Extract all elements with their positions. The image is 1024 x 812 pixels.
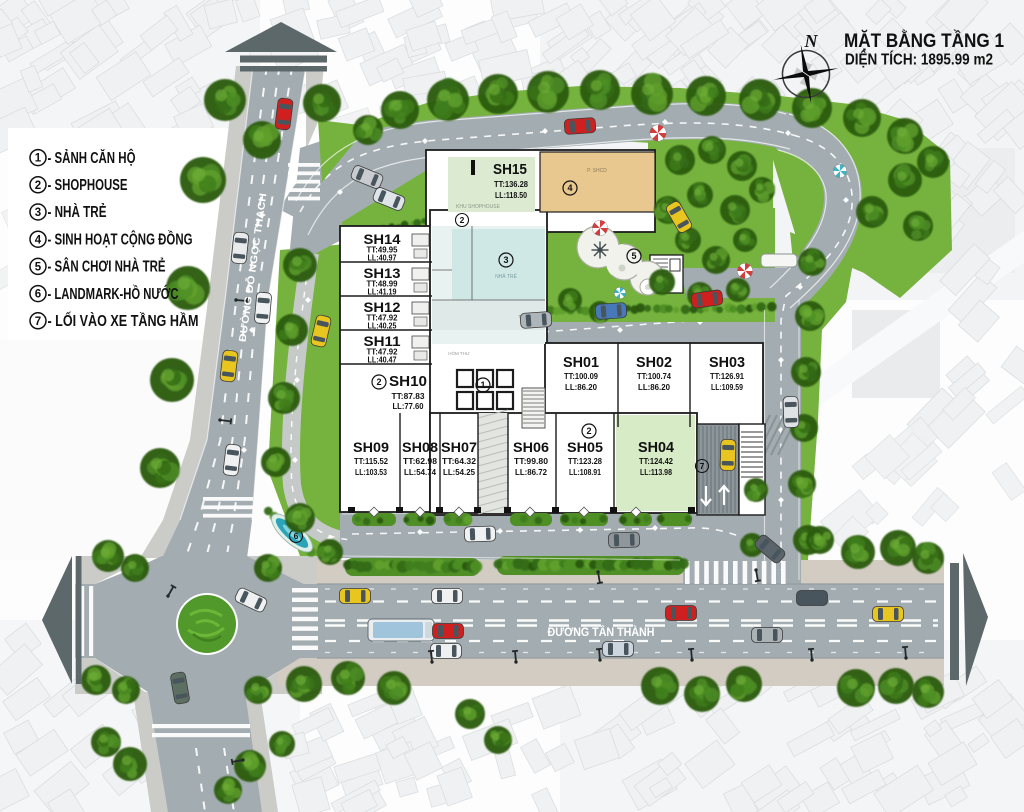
svg-text:SH09: SH09	[353, 439, 389, 455]
svg-text:DIỆN TÍCH: 1895.99 m2: DIỆN TÍCH: 1895.99 m2	[845, 50, 993, 69]
svg-text:- SÂN CHƠI NHÀ TRẺ: - SÂN CHƠI NHÀ TRẺ	[48, 258, 166, 276]
svg-text:LL:109.59: LL:109.59	[711, 382, 743, 392]
svg-text:2: 2	[376, 377, 381, 387]
svg-text:LL:40.97: LL:40.97	[368, 254, 397, 263]
svg-text:SH05: SH05	[567, 439, 603, 455]
svg-text:TT:62.98: TT:62.98	[403, 457, 438, 466]
svg-text:1: 1	[35, 153, 42, 165]
svg-text:LL:118.50: LL:118.50	[495, 190, 527, 200]
svg-text:TT:136.28: TT:136.28	[494, 179, 528, 189]
svg-text:- NHÀ TRẺ: - NHÀ TRẺ	[48, 204, 107, 221]
svg-text:LL:108.91: LL:108.91	[569, 468, 601, 477]
svg-text:LL:54.74: LL:54.74	[404, 468, 437, 477]
svg-text:LL:40.47: LL:40.47	[368, 356, 397, 365]
svg-text:5: 5	[35, 262, 42, 274]
svg-text:TT:123.28: TT:123.28	[568, 457, 602, 466]
svg-text:2: 2	[460, 215, 465, 225]
svg-text:LL:86.72: LL:86.72	[515, 468, 547, 477]
svg-text:- SINH HOẠT CỘNG ĐỒNG: - SINH HOẠT CỘNG ĐỒNG	[48, 230, 193, 248]
svg-text:TT:87.83: TT:87.83	[392, 391, 425, 401]
svg-text:2: 2	[35, 180, 41, 192]
svg-text:SH03: SH03	[709, 354, 745, 371]
svg-text:TT:126.91: TT:126.91	[710, 371, 744, 381]
svg-text:6: 6	[35, 289, 41, 301]
svg-text:TT:64.32: TT:64.32	[442, 457, 477, 466]
svg-text:4: 4	[567, 183, 572, 193]
svg-text:TT:100.09: TT:100.09	[564, 371, 598, 381]
svg-text:LL:86.20: LL:86.20	[565, 382, 597, 392]
svg-text:NHÀ TRẺ: NHÀ TRẺ	[495, 273, 518, 280]
svg-text:LL:41.19: LL:41.19	[368, 288, 398, 297]
svg-text:SH04: SH04	[638, 440, 674, 456]
svg-text:ĐƯỜNG TÂN THÀNH: ĐƯỜNG TÂN THÀNH	[548, 626, 655, 639]
svg-text:LL:113.98: LL:113.98	[640, 467, 672, 477]
svg-text:1: 1	[480, 380, 485, 390]
svg-text:N: N	[804, 31, 819, 51]
svg-text:SH10: SH10	[389, 374, 427, 390]
svg-text:- LANDMARK-HỒ NƯỚC: - LANDMARK-HỒ NƯỚC	[48, 285, 179, 303]
svg-text:7: 7	[35, 316, 41, 328]
svg-text:LL:54.25: LL:54.25	[443, 468, 476, 477]
svg-text:SH01: SH01	[563, 354, 599, 371]
svg-text:SH15: SH15	[493, 161, 527, 178]
svg-text:TT:99.80: TT:99.80	[514, 457, 548, 466]
svg-text:LL:86.20: LL:86.20	[638, 382, 670, 392]
svg-text:SH07: SH07	[441, 440, 477, 455]
svg-text:- LỐI VÀO XE TẦNG HẦM: - LỐI VÀO XE TẦNG HẦM	[48, 312, 199, 330]
svg-text:5: 5	[631, 251, 636, 261]
svg-text:MẶT BẰNG TẦNG 1: MẶT BẰNG TẦNG 1	[844, 30, 1004, 52]
svg-text:P. SHCD: P. SHCD	[587, 168, 607, 174]
svg-text:4: 4	[35, 234, 42, 246]
svg-text:LL:40.25: LL:40.25	[368, 322, 398, 331]
svg-text:SH08: SH08	[402, 440, 439, 455]
svg-text:7: 7	[700, 461, 705, 471]
svg-text:KHU SHOPHOUSE: KHU SHOPHOUSE	[456, 204, 501, 210]
svg-text:TT:115.52: TT:115.52	[354, 457, 388, 466]
svg-text:2: 2	[586, 426, 591, 436]
svg-text:HÒM THƯ: HÒM THƯ	[448, 350, 470, 356]
svg-text:LL:103.53: LL:103.53	[355, 468, 387, 477]
svg-text:- SẢNH CĂN HỘ: - SẢNH CĂN HỘ	[48, 149, 136, 167]
svg-text:TT:100.74: TT:100.74	[637, 371, 671, 381]
svg-text:3: 3	[503, 255, 508, 265]
svg-text:- SHOPHOUSE: - SHOPHOUSE	[48, 177, 128, 194]
svg-text:TT:124.42: TT:124.42	[639, 456, 673, 466]
svg-text:3: 3	[35, 207, 41, 219]
svg-text:SH02: SH02	[636, 354, 672, 371]
svg-text:SH06: SH06	[513, 439, 549, 455]
svg-text:LL:77.60: LL:77.60	[393, 401, 424, 411]
